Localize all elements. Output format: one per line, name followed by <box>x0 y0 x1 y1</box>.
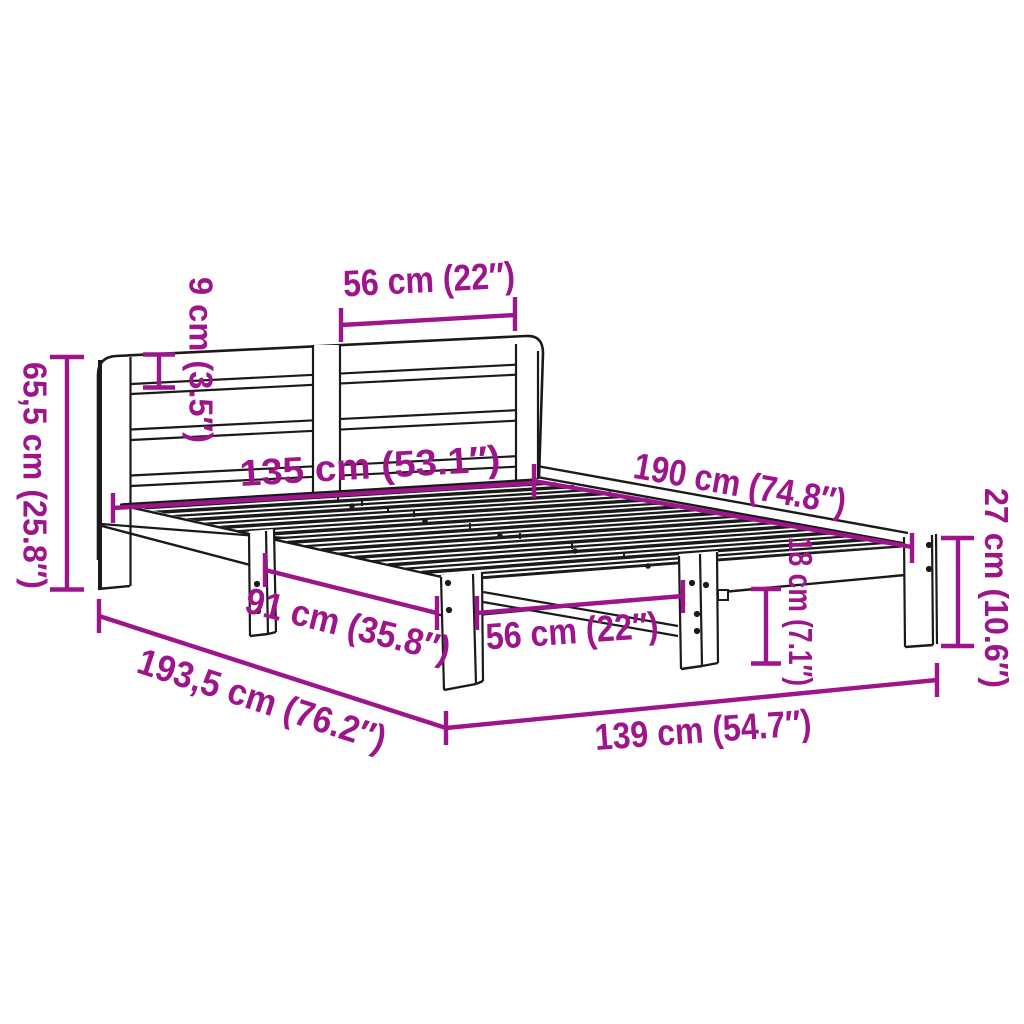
svg-text:27 cm (10.6″): 27 cm (10.6″) <box>978 488 1015 688</box>
svg-text:18 cm (7.1″): 18 cm (7.1″) <box>782 537 819 686</box>
svg-text:9 cm (3.5″): 9 cm (3.5″) <box>183 277 220 443</box>
svg-text:65,5 cm (25.8″): 65,5 cm (25.8″) <box>17 362 54 589</box>
